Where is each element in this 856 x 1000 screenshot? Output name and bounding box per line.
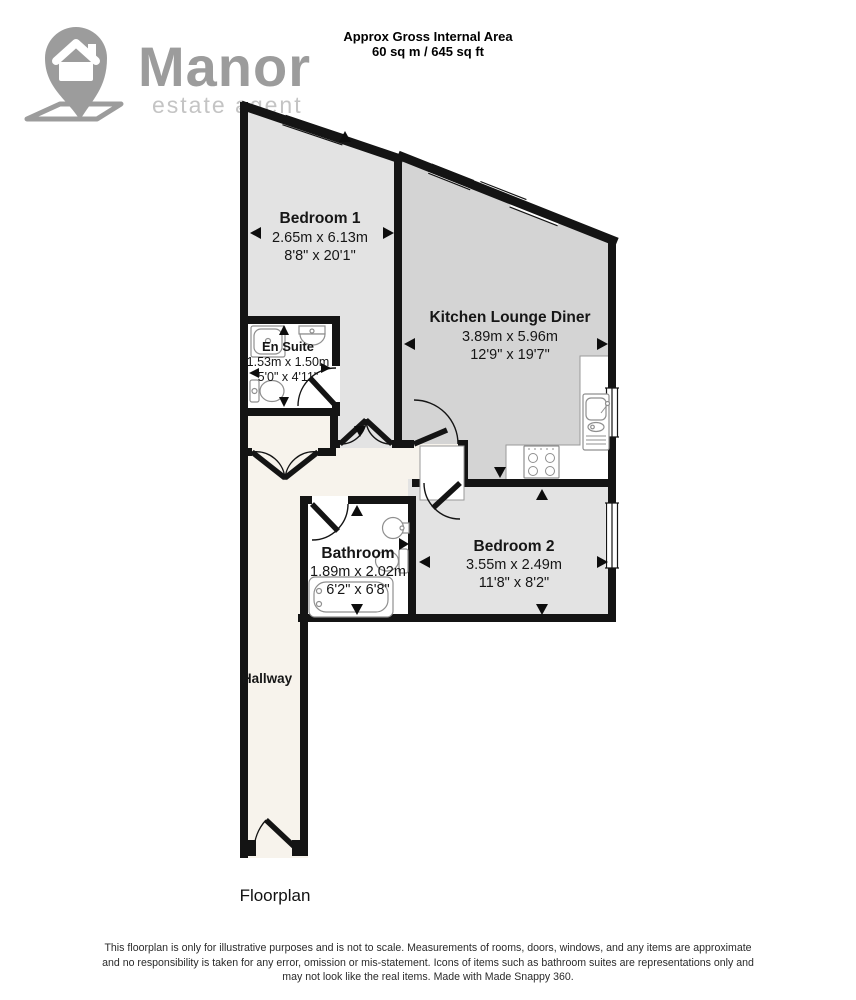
disclaimer-line: and no responsibility is taken for any e… (0, 956, 856, 971)
bathroom-metric: 1.89m x 2.02m (310, 564, 406, 580)
kitchen-label: Kitchen Lounge Diner (429, 309, 590, 326)
ensuite-label: En Suite (262, 339, 314, 354)
bedroom2-imperial: 11'8" x 8'2" (479, 575, 549, 591)
floorplan-drawing: Bedroom 1 2.65m x 6.13m 8'8" x 20'1" Kit… (0, 0, 856, 1000)
bedroom2-metric: 3.55m x 2.49m (466, 557, 562, 573)
bathroom-imperial: 6'2" x 6'8" (326, 582, 389, 598)
bedroom1-imperial: 8'8" x 20'1" (284, 248, 355, 264)
floorplan-caption: Floorplan (205, 886, 345, 906)
floorplan-page: Approx Gross Internal Area 60 sq m / 645… (0, 0, 856, 1000)
kitchen-metric: 3.89m x 5.96m (462, 329, 558, 345)
ensuite-imperial: 5'0" x 4'11" (258, 370, 319, 384)
kitchen-sink-icon (583, 394, 610, 450)
hob-icon (524, 446, 559, 478)
bedroom1-label: Bedroom 1 (280, 210, 361, 227)
kitchen-imperial: 12'9" x 19'7" (470, 347, 550, 363)
disclaimer: This floorplan is only for illustrative … (0, 941, 856, 985)
bedroom1-metric: 2.65m x 6.13m (272, 230, 368, 246)
disclaimer-line: may not look like the real items. Made w… (0, 970, 856, 985)
disclaimer-line: This floorplan is only for illustrative … (0, 941, 856, 956)
hallway-label: Hallway (242, 671, 293, 686)
bedroom2-label: Bedroom 2 (474, 538, 555, 555)
ensuite-metric: 1.53m x 1.50m (247, 355, 330, 369)
bedroom2-window (605, 503, 619, 568)
bathroom-label: Bathroom (321, 545, 394, 562)
